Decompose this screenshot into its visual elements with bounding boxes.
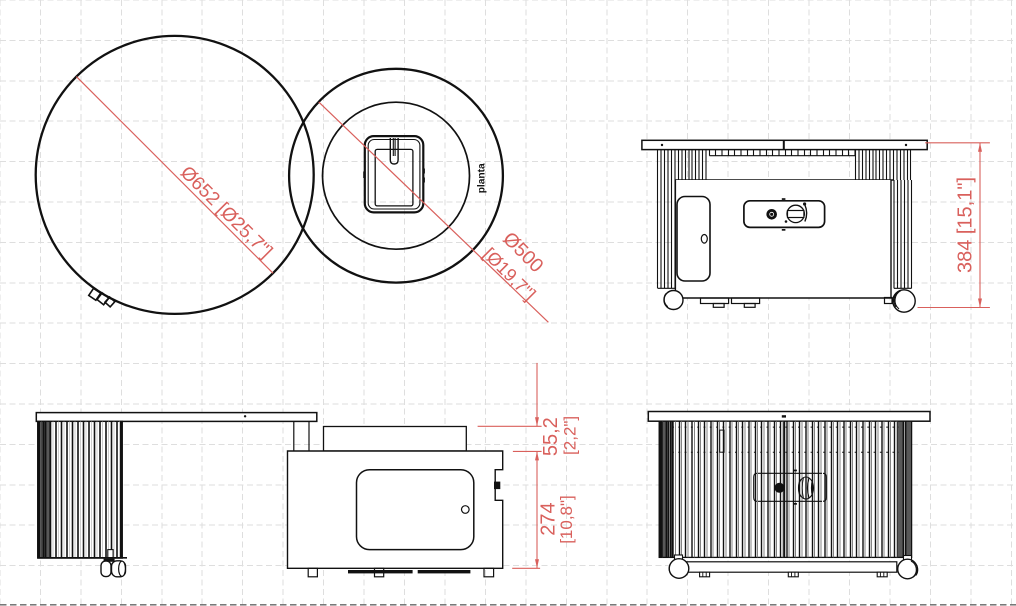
svg-text:planta: planta (476, 163, 487, 193)
svg-text:384 [15,1"]: 384 [15,1"] (955, 177, 977, 273)
svg-text:[2,2"]: [2,2"] (561, 416, 580, 455)
svg-text:Ø652 [Ø25,7"]: Ø652 [Ø25,7"] (176, 162, 276, 262)
svg-text:[10,8"]: [10,8"] (557, 495, 576, 544)
svg-text:55,2: 55,2 (540, 417, 562, 456)
